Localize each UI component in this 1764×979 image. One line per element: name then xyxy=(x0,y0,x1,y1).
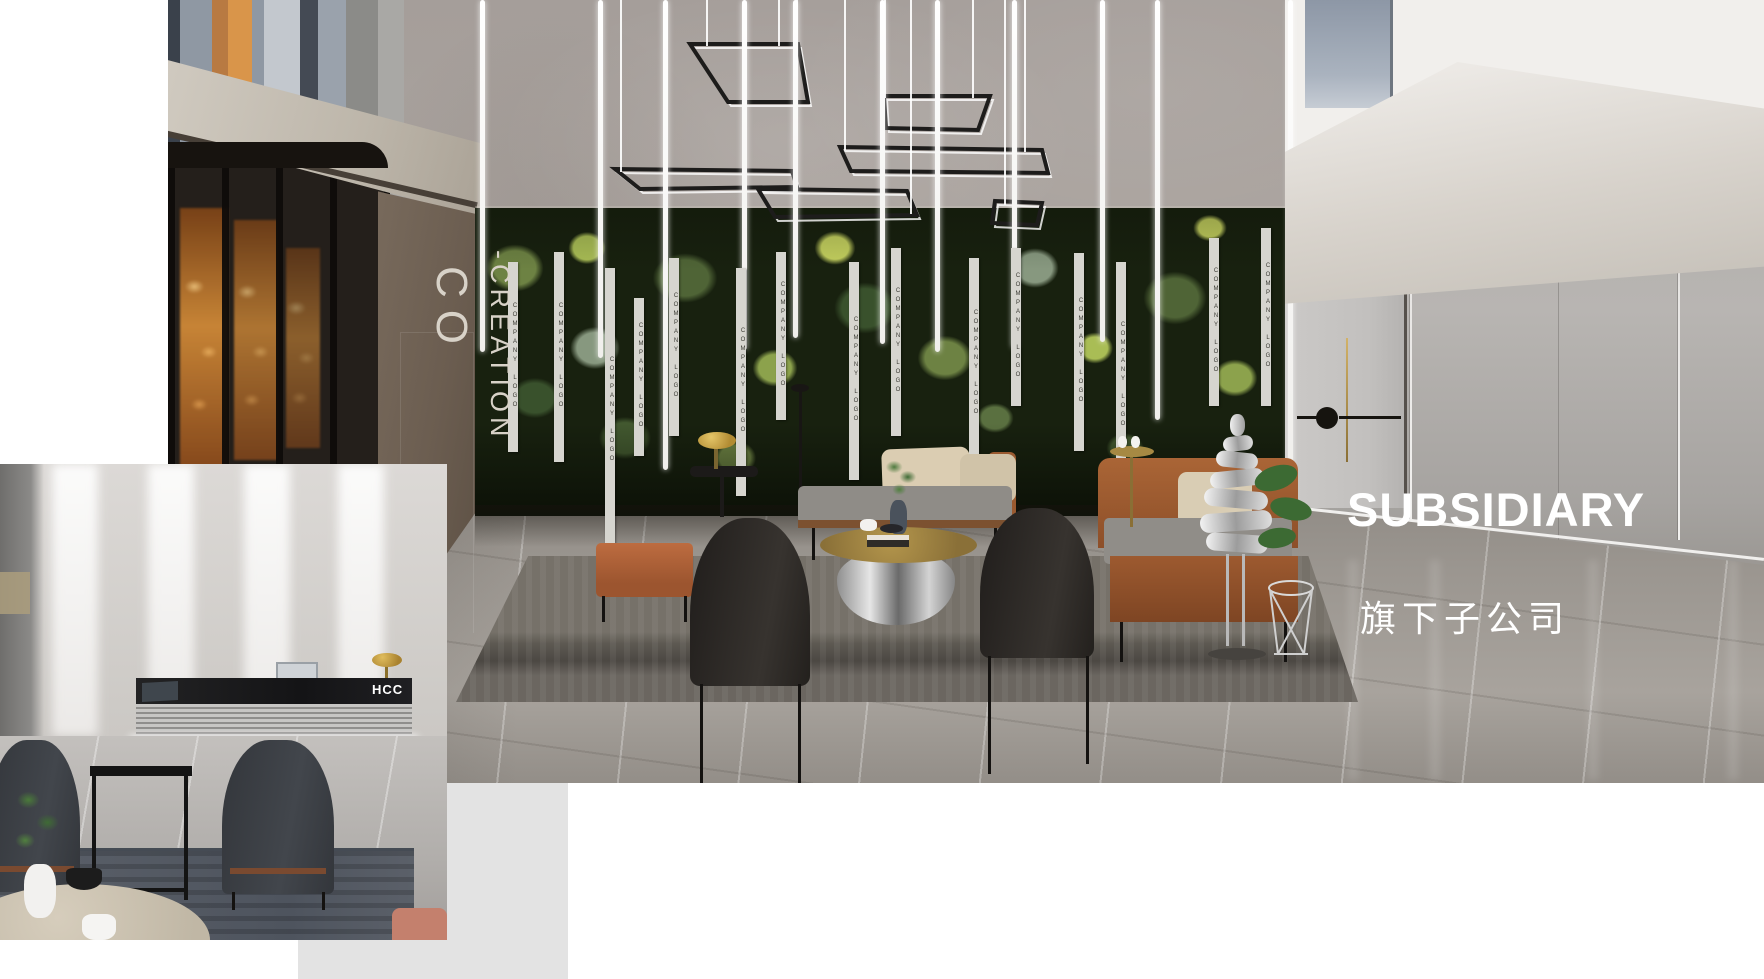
company-logo-strip: COMPANY LOGO xyxy=(554,252,564,462)
pendant-cable xyxy=(620,0,622,172)
armchair-leg xyxy=(988,656,991,774)
wire-stool xyxy=(1266,580,1316,660)
led-light-tube xyxy=(880,0,885,344)
gold-mushroom-lamp xyxy=(698,432,736,449)
led-light-tube xyxy=(1100,0,1105,342)
pendant-cable xyxy=(844,0,846,150)
pendant-cable xyxy=(910,0,912,214)
desk-info-screen xyxy=(142,681,178,702)
led-light-tube xyxy=(793,0,798,338)
black-decor-pot xyxy=(66,868,102,890)
sculpture-leg xyxy=(1242,554,1245,646)
table-branch-plant xyxy=(884,452,918,502)
company-logo-strip: COMPANY LOGO xyxy=(1011,248,1021,406)
black-side-table xyxy=(690,466,758,477)
sculpture-base xyxy=(1208,648,1266,660)
company-logo-strip: COMPANY LOGO xyxy=(1209,238,1219,406)
company-logo-strip: COMPANY LOGO xyxy=(776,252,786,420)
entrance-sign-creation: -CREATION xyxy=(484,250,515,442)
sculpture-head xyxy=(1230,414,1245,436)
wall-light-strip xyxy=(52,464,98,736)
desk-lamp-stem xyxy=(385,665,388,679)
company-logo-strip: COMPANY LOGO xyxy=(605,268,615,553)
armchair-leg xyxy=(1086,656,1089,764)
chair-leg xyxy=(322,892,325,910)
daybed-leg xyxy=(812,528,815,560)
chair-wood-trim xyxy=(230,868,326,874)
coffee-cup xyxy=(860,519,877,531)
pendant-cable xyxy=(706,0,708,46)
armchair-leg xyxy=(798,684,801,783)
vase-plant xyxy=(6,782,70,872)
chair-leg xyxy=(232,892,235,910)
collage-page: CO -CREATION xyxy=(0,0,1764,979)
side-table-leg xyxy=(184,776,188,900)
company-logo-strip: COMPANY LOGO xyxy=(736,268,746,496)
pendant-light xyxy=(690,44,808,102)
white-figurine xyxy=(1118,436,1127,448)
door-sign-bar xyxy=(1339,416,1401,419)
bench-leg xyxy=(602,596,605,622)
desk-logo: HCC xyxy=(372,682,403,697)
page-subtitle: 旗下子公司 xyxy=(1360,590,1570,642)
white-mug xyxy=(82,914,116,940)
black-tray xyxy=(880,524,903,533)
door-sign-bar xyxy=(1297,416,1321,419)
terracotta-bench xyxy=(596,543,693,597)
company-logo-strip: COMPANY LOGO xyxy=(1261,228,1271,406)
white-vase xyxy=(24,864,56,918)
company-logo-strip: COMPANY LOGO xyxy=(891,248,901,436)
led-light-tube xyxy=(598,0,603,358)
armchair-right xyxy=(980,508,1094,658)
mushroom-lamp-stem xyxy=(714,447,718,469)
reception-desk-base xyxy=(136,704,412,738)
gold-trim-line xyxy=(1346,338,1348,462)
pendant-cable xyxy=(1024,0,1026,152)
inset-reception-photo: HCC xyxy=(0,464,447,940)
black-side-table-top xyxy=(90,766,192,776)
corridor-cabinet xyxy=(0,572,30,614)
armchair-left xyxy=(690,518,810,686)
white-figurine xyxy=(1131,436,1140,448)
company-logo-strip: COMPANY LOGO xyxy=(969,258,979,470)
company-logo-strip: COMPANY LOGO xyxy=(634,298,644,456)
pendant-cable xyxy=(1004,0,1006,205)
pendant-light xyxy=(615,169,797,189)
sculpture-leg xyxy=(1226,554,1229,646)
sofa-leg xyxy=(1120,622,1123,662)
pendant-cable xyxy=(972,0,974,98)
led-light-tube xyxy=(663,0,668,470)
side-table-leg xyxy=(720,477,724,517)
lounge-chair-right xyxy=(222,740,334,894)
entrance-sign-co: CO xyxy=(426,266,476,356)
company-logo-strip: COMPANY LOGO xyxy=(669,258,679,436)
led-light-tube xyxy=(935,0,940,352)
floor-lamp-shade xyxy=(791,384,809,392)
gold-desk-lamp xyxy=(372,653,402,667)
armchair-leg xyxy=(700,684,703,783)
book-stack xyxy=(867,535,909,547)
gold-side-table xyxy=(1110,446,1154,457)
gold-side-table-stem xyxy=(1130,455,1133,527)
led-light-tube xyxy=(1155,0,1160,420)
company-logo-strip: COMPANY LOGO xyxy=(1074,253,1084,451)
bench-leg xyxy=(684,596,687,622)
page-title: SUBSIDIARY xyxy=(1347,482,1645,537)
pendant-cable xyxy=(778,0,780,46)
pink-stool xyxy=(392,908,447,940)
